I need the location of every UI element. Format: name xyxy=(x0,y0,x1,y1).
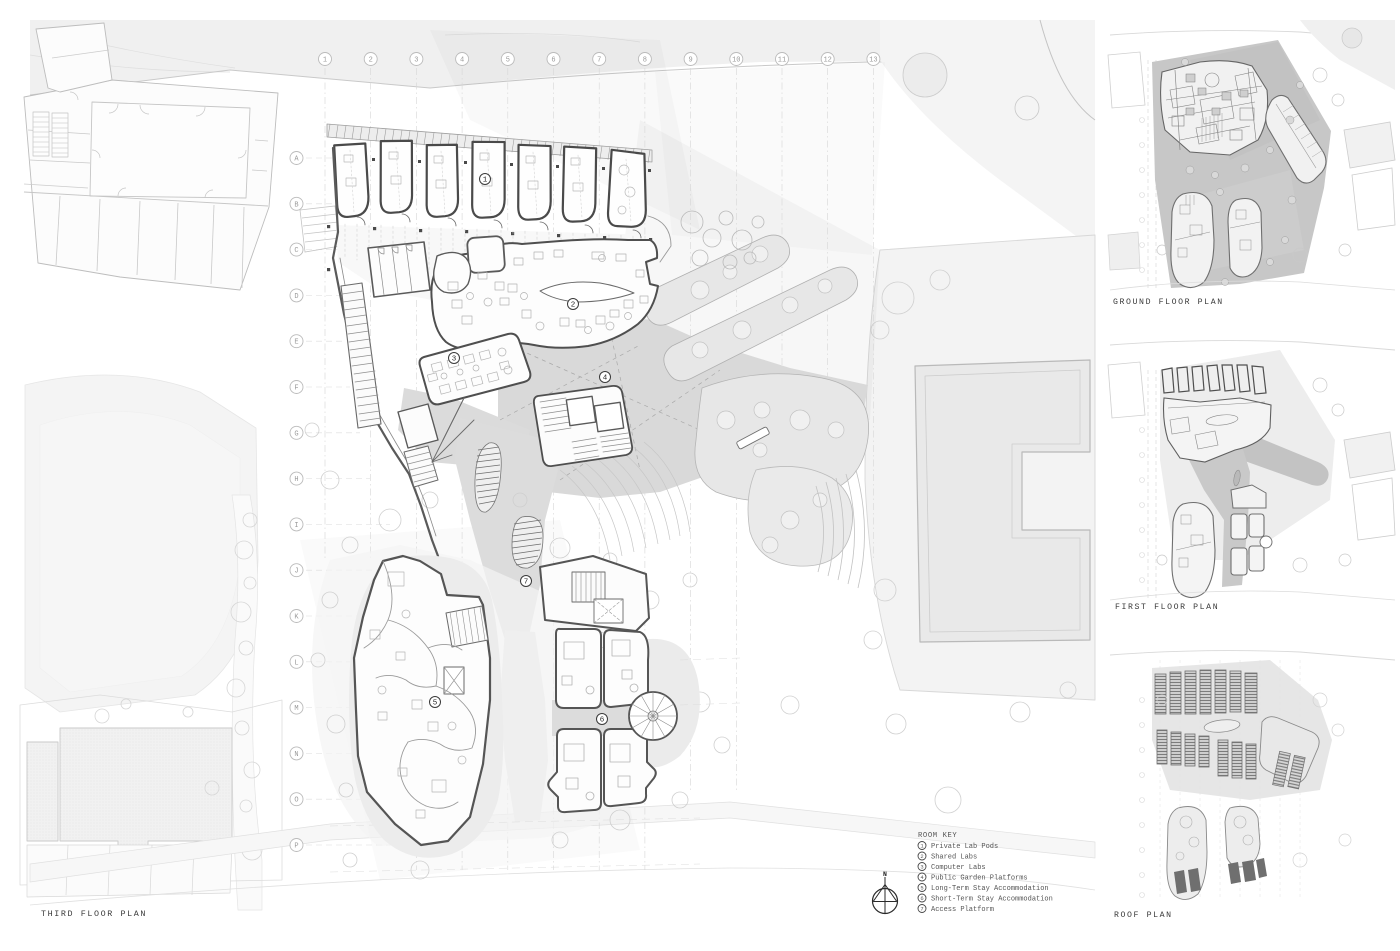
svg-text:5: 5 xyxy=(506,57,510,65)
svg-text:P: P xyxy=(294,843,298,851)
svg-text:6: 6 xyxy=(920,895,923,902)
svg-text:Access Platform: Access Platform xyxy=(931,906,994,914)
svg-text:E: E xyxy=(294,339,298,347)
svg-text:G: G xyxy=(294,430,298,438)
svg-text:6: 6 xyxy=(551,57,555,65)
svg-text:Computer Labs: Computer Labs xyxy=(931,864,986,872)
svg-text:4: 4 xyxy=(460,57,464,65)
svg-text:8: 8 xyxy=(643,57,647,65)
svg-text:7: 7 xyxy=(597,57,601,65)
svg-text:3: 3 xyxy=(414,57,418,65)
svg-text:I: I xyxy=(294,522,298,530)
svg-text:1: 1 xyxy=(323,57,327,65)
svg-text:3: 3 xyxy=(452,356,457,364)
svg-text:J: J xyxy=(294,568,298,576)
svg-text:10: 10 xyxy=(732,57,740,65)
svg-text:5: 5 xyxy=(433,700,438,708)
svg-text:13: 13 xyxy=(869,57,877,65)
svg-text:O: O xyxy=(294,797,298,805)
svg-text:B: B xyxy=(294,201,298,209)
svg-text:THIRD FLOOR PLAN: THIRD FLOOR PLAN xyxy=(41,909,147,919)
svg-text:2: 2 xyxy=(369,57,373,65)
svg-text:Shared Labs: Shared Labs xyxy=(931,854,977,862)
svg-text:12: 12 xyxy=(823,57,831,65)
svg-text:C: C xyxy=(294,247,298,255)
svg-text:6: 6 xyxy=(600,717,605,725)
svg-text:4: 4 xyxy=(603,375,608,383)
svg-text:D: D xyxy=(294,293,298,301)
svg-text:2: 2 xyxy=(920,853,923,860)
svg-text:M: M xyxy=(294,705,298,713)
svg-text:7: 7 xyxy=(920,906,923,913)
svg-text:3: 3 xyxy=(920,864,923,871)
svg-text:Public Garden Platforms: Public Garden Platforms xyxy=(931,875,1028,883)
svg-text:N: N xyxy=(294,751,298,759)
svg-text:ROOM KEY: ROOM KEY xyxy=(918,832,957,840)
svg-text:Long-Term Stay Accommodation: Long-Term Stay Accommodation xyxy=(931,885,1049,893)
svg-text:5: 5 xyxy=(920,885,923,892)
svg-text:F: F xyxy=(294,385,298,393)
svg-text:7: 7 xyxy=(524,579,529,587)
svg-text:L: L xyxy=(294,659,298,667)
svg-text:FIRST FLOOR PLAN: FIRST FLOOR PLAN xyxy=(1115,603,1219,612)
svg-text:Private Lab Pods: Private Lab Pods xyxy=(931,843,998,851)
svg-text:ROOF PLAN: ROOF PLAN xyxy=(1114,911,1173,920)
svg-text:1: 1 xyxy=(483,177,488,185)
svg-text:GROUND FLOOR PLAN: GROUND FLOOR PLAN xyxy=(1113,298,1224,307)
svg-text:9: 9 xyxy=(688,57,692,65)
svg-text:11: 11 xyxy=(778,57,786,65)
svg-text:Short-Term Stay Accommodation: Short-Term Stay Accommodation xyxy=(931,896,1053,904)
svg-text:H: H xyxy=(294,476,298,484)
svg-text:N: N xyxy=(883,871,887,878)
svg-text:2: 2 xyxy=(571,302,576,310)
